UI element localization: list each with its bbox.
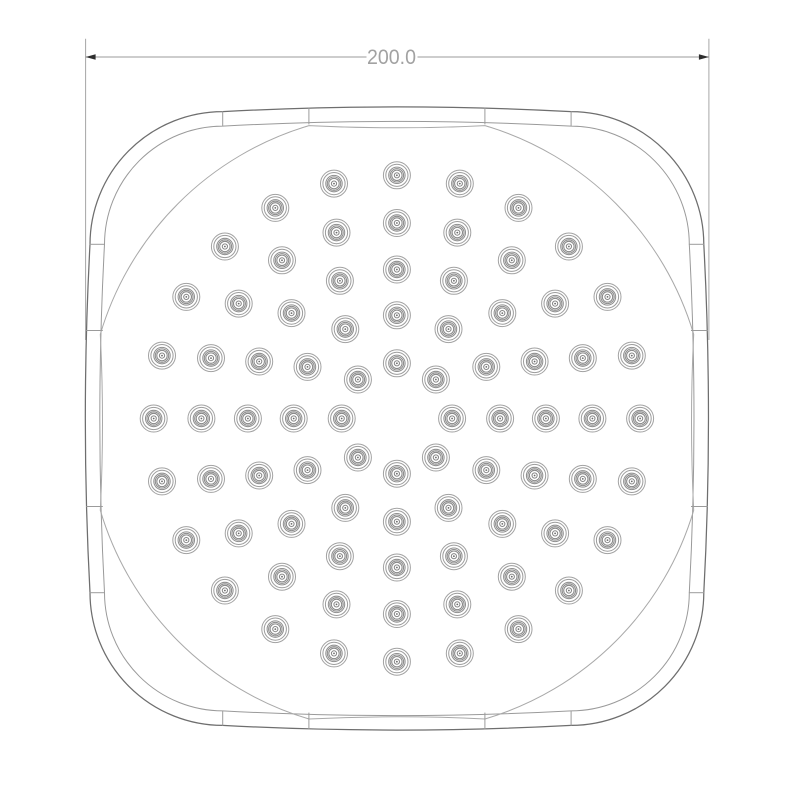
svg-text:200.0: 200.0 — [367, 46, 416, 69]
